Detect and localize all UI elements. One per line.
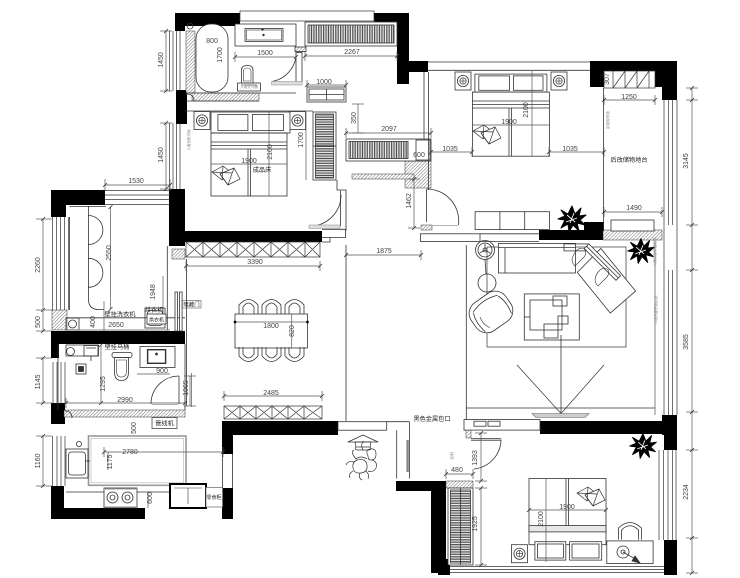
svg-text:1490: 1490 [626, 205, 642, 212]
svg-text:暗藏门: 暗藏门 [183, 301, 199, 309]
svg-text:800: 800 [206, 38, 218, 45]
svg-text:壁挂洗衣机: 壁挂洗衣机 [105, 311, 137, 319]
svg-text:2267: 2267 [344, 49, 360, 56]
svg-text:入墙衣柜内嵌: 入墙衣柜内嵌 [186, 129, 191, 151]
svg-text:1450: 1450 [158, 52, 165, 68]
svg-text:1393: 1393 [472, 450, 479, 466]
svg-text:2100: 2100 [523, 102, 530, 118]
svg-text:1800: 1800 [263, 323, 279, 330]
svg-text:3145: 3145 [683, 153, 690, 169]
svg-text:1160: 1160 [35, 453, 42, 468]
svg-text:零食柜: 零食柜 [206, 494, 221, 501]
svg-text:3390: 3390 [247, 259, 263, 266]
svg-text:1035: 1035 [442, 146, 458, 153]
svg-text:2485: 2485 [263, 390, 279, 397]
svg-text:307: 307 [604, 73, 611, 85]
svg-text:2780: 2780 [122, 449, 138, 456]
svg-text:2260: 2260 [35, 257, 42, 273]
svg-text:1500: 1500 [257, 50, 273, 57]
svg-text:3585: 3585 [683, 334, 690, 350]
svg-text:1145: 1145 [35, 374, 42, 389]
svg-text:400: 400 [90, 316, 97, 328]
svg-text:1175: 1175 [107, 454, 114, 469]
svg-text:后改储物地台: 后改储物地台 [610, 156, 647, 164]
svg-text:600: 600 [147, 492, 154, 504]
svg-text:壁挂马桶: 壁挂马桶 [105, 343, 130, 351]
svg-text:1900: 1900 [559, 504, 575, 511]
svg-text:烘衣机: 烘衣机 [145, 306, 164, 314]
svg-text:350: 350 [351, 112, 358, 124]
svg-text:1700: 1700 [217, 47, 224, 63]
svg-text:1295: 1295 [100, 376, 107, 392]
svg-text:1925: 1925 [472, 516, 479, 532]
svg-text:2550: 2550 [106, 245, 113, 261]
svg-text:成品床: 成品床 [253, 166, 272, 174]
svg-text:1462: 1462 [406, 193, 413, 209]
svg-text:入墙式窗帘盒定制: 入墙式窗帘盒定制 [652, 237, 657, 266]
svg-text:1065: 1065 [183, 380, 190, 396]
svg-text:1530: 1530 [128, 178, 144, 185]
svg-text:2990: 2990 [117, 397, 133, 404]
svg-text:管线机: 管线机 [155, 420, 174, 428]
svg-text:1700: 1700 [298, 132, 305, 148]
svg-text:1250: 1250 [621, 94, 637, 101]
svg-text:1000: 1000 [316, 79, 332, 86]
svg-text:600: 600 [413, 152, 425, 159]
svg-text:1035: 1035 [562, 146, 578, 153]
svg-text:1900: 1900 [241, 158, 257, 165]
svg-text:2097: 2097 [381, 126, 397, 133]
svg-text:2234: 2234 [683, 484, 690, 500]
svg-text:820: 820 [289, 325, 296, 337]
svg-text:1875: 1875 [376, 248, 392, 255]
svg-text:500: 500 [35, 316, 42, 328]
svg-text:定制窗帘盒: 定制窗帘盒 [605, 111, 610, 129]
svg-text:定制: 定制 [449, 452, 454, 460]
svg-text:1948: 1948 [150, 284, 157, 300]
svg-text:入墙式马桶: 入墙式马桶 [240, 84, 258, 89]
svg-text:烘衣机: 烘衣机 [149, 317, 164, 324]
svg-text:2100: 2100 [267, 144, 274, 160]
svg-text:入墙式窗帘盒定制: 入墙式窗帘盒定制 [653, 295, 658, 324]
svg-text:2650: 2650 [108, 322, 124, 329]
svg-text:900: 900 [156, 368, 168, 375]
svg-text:黑色金属包口: 黑色金属包口 [413, 415, 450, 423]
svg-text:500: 500 [131, 422, 138, 434]
svg-text:1450: 1450 [158, 147, 165, 163]
svg-text:2100: 2100 [538, 511, 545, 527]
svg-text:480: 480 [451, 467, 463, 474]
svg-text:1900: 1900 [501, 119, 517, 126]
